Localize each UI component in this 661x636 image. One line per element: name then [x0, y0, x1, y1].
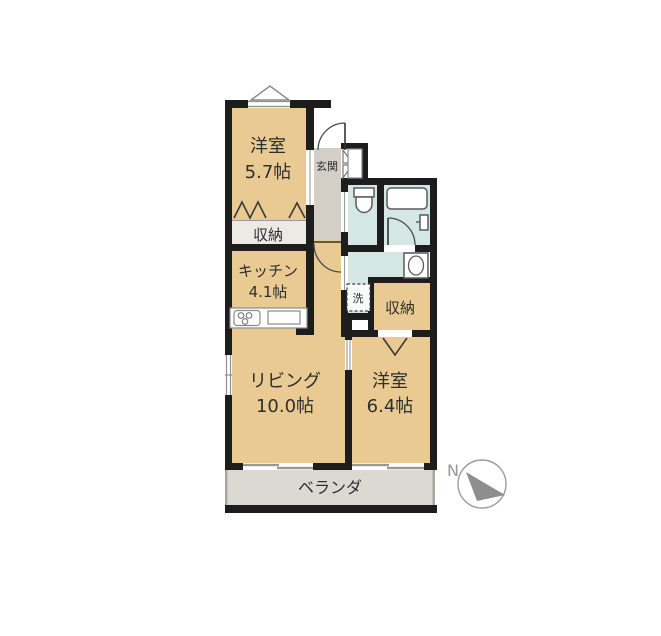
laundry-label: 洗: [353, 292, 364, 305]
kitchen-size: 4.1帖: [249, 283, 288, 301]
room-hallway-floor: [314, 240, 341, 335]
bedroom2-slider-pane2: [387, 467, 424, 469]
wall-wet-top: [341, 178, 437, 185]
bedroom1-size: 5.7帖: [245, 162, 292, 183]
bedroom2-size: 6.4帖: [367, 396, 414, 417]
bedroom2-slider-pane1: [352, 464, 389, 466]
vanity-basin-icon: [409, 256, 424, 275]
wall-left-outer: [225, 100, 232, 470]
veranda-right-edge: [433, 470, 436, 505]
bath-faucet-icon: [420, 215, 428, 230]
floor-plan-page: N 洋室 5.7帖 収納 キッチン 4.1帖 玄関 洗 収納 リビング 10.0…: [0, 0, 661, 636]
wall-toilet-bath-divider: [377, 185, 384, 245]
toilet-bowl-icon: [356, 197, 372, 213]
veranda-label: ベランダ: [298, 478, 362, 497]
bedroom2-label: 洋室: [372, 371, 408, 392]
living-slider-pane1: [243, 464, 279, 466]
bathtub-icon: [387, 188, 427, 209]
living-label: リビング: [249, 371, 321, 392]
bedroom1-label: 洋室: [250, 136, 286, 157]
wall-veranda-bottom: [225, 505, 437, 513]
veranda-left-edge: [225, 470, 228, 505]
living-bedroom2-door-gap: [345, 340, 352, 370]
wall-closet1-bottom: [225, 244, 314, 251]
floor-plan-drawing: N 洋室 5.7帖 収納 キッチン 4.1帖 玄関 洗 収納 リビング 10.0…: [0, 0, 661, 636]
closet2-label: 収納: [385, 299, 415, 317]
toilet-tank-icon: [354, 188, 374, 197]
wall-right-outer: [430, 178, 437, 470]
entrance-door-arc: [318, 123, 345, 150]
kitchen-label: キッチン: [238, 262, 298, 280]
compass: N: [447, 460, 506, 508]
entrance-label: 玄関: [316, 159, 338, 173]
wall-washroom-bottom: [341, 313, 374, 320]
bathroom-door-gap: [384, 245, 415, 252]
compass-label: N: [447, 461, 459, 480]
shoebox-cabinet: [348, 149, 362, 178]
bay-window-icon: [251, 86, 289, 100]
living-size: 10.0帖: [256, 396, 314, 417]
closet2-door-gap: [378, 330, 412, 337]
kitchen-sink-icon: [268, 311, 300, 324]
closet1-label: 収納: [253, 226, 283, 244]
living-slider-pane2: [277, 467, 313, 469]
wall-kitchen-bottom-stub: [296, 328, 314, 335]
